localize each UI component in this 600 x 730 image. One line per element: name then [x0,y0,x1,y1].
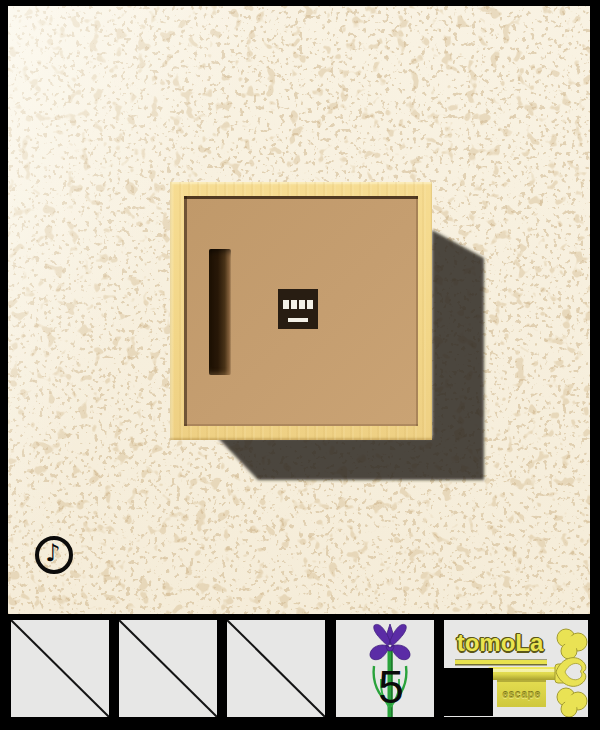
music-toggle-button[interactable]: ♪ [35,536,73,574]
empty-slot-diagonal-icon [227,620,325,717]
logo-cover-black-box [444,668,493,716]
keypad-cell [283,300,289,309]
logo-underline [455,660,547,664]
music-note-icon: ♪ [45,541,60,565]
card-slot-groove[interactable] [209,249,231,375]
keypad-cell [291,300,297,309]
inventory-slot-4[interactable]: 5 [336,620,434,717]
game-screen: ♪ [0,0,600,730]
item-count-label: 5 [378,664,404,710]
key-teeth: escape [497,680,546,707]
wall[interactable]: ♪ [8,6,590,614]
inventory-slot-1[interactable] [11,620,109,717]
keypad-indicator-row [278,300,318,309]
keypad-device[interactable] [278,289,318,329]
keypad-cell [299,300,305,309]
empty-slot-diagonal-icon [119,620,217,717]
inventory-slot-logo[interactable]: escape tomoLa [444,620,588,717]
keypad-dash [288,318,308,322]
tomola-logo-text: tomoLa [450,631,550,655]
key-teeth-label: escape [502,688,541,700]
keypad-cell [307,300,313,309]
inventory-slot-2[interactable] [119,620,217,717]
wooden-box-frame[interactable] [170,182,432,440]
box-panel[interactable] [184,196,418,426]
inventory-slot-3[interactable] [227,620,325,717]
empty-slot-diagonal-icon [11,620,109,717]
